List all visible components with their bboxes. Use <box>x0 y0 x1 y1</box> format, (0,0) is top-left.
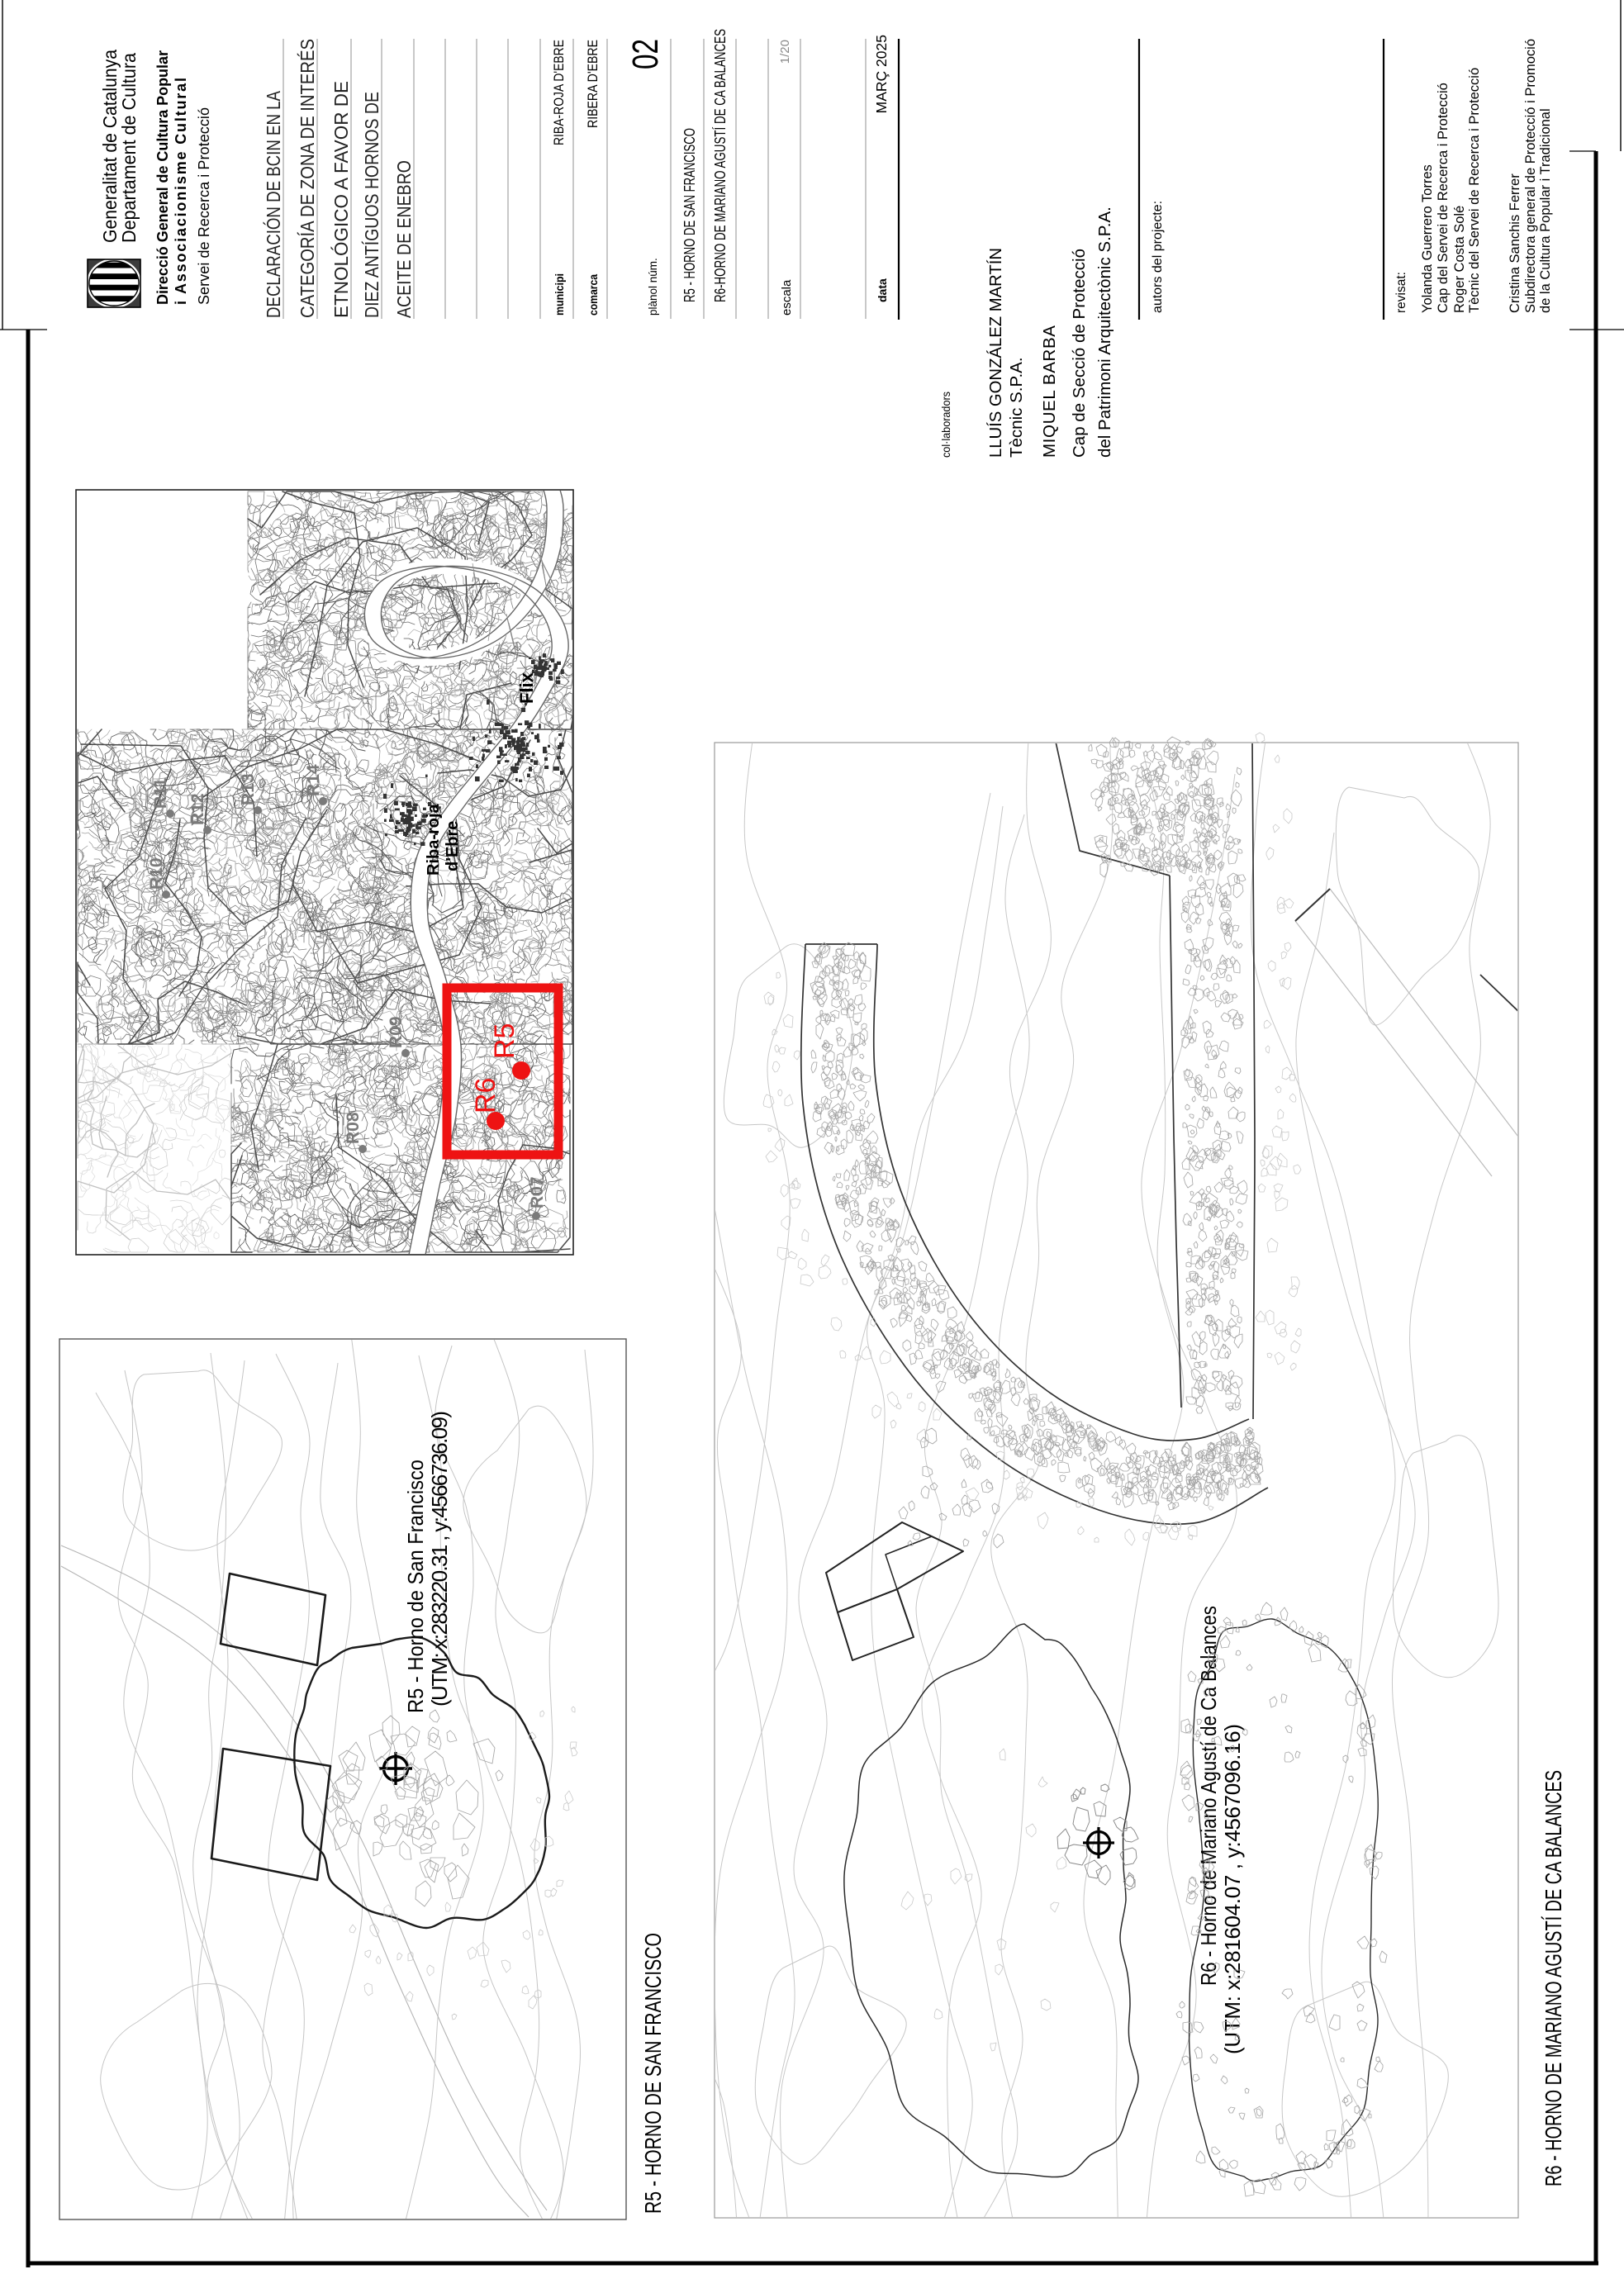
svg-text:data: data <box>876 278 889 302</box>
svg-text:Tècnic S.P.A.: Tècnic S.P.A. <box>1007 357 1026 458</box>
svg-text:R5 - Horno de San Francisco: R5 - Horno de San Francisco <box>403 1460 428 1713</box>
svg-text:CATEGORÍA DE ZONA DE INTERÉS: CATEGORÍA DE ZONA DE INTERÉS <box>297 39 318 318</box>
svg-text:ACEITE DE ENEBRO: ACEITE DE ENEBRO <box>393 160 415 318</box>
svg-text:d'Ebre: d'Ebre <box>444 821 462 871</box>
svg-text:ETNOLÓGICO A FAVOR DE: ETNOLÓGICO A FAVOR DE <box>330 81 352 318</box>
svg-text:R6-HORNO DE MARIANO AGUSTÍ DE: R6-HORNO DE MARIANO AGUSTÍ DE CA BALANCE… <box>712 29 729 302</box>
svg-text:(UTM: x:283220.31 , y:4566736.: (UTM: x:283220.31 , y:4566736.09) <box>427 1411 452 1707</box>
svg-text:Servei de Recerca i Protecció: Servei de Recerca i Protecció <box>196 107 212 305</box>
svg-text:Departament de Cultura: Departament de Cultura <box>118 53 140 243</box>
svg-text:R13: R13 <box>239 773 258 805</box>
svg-text:R5 - HORNO DE SAN FRANCISCO: R5 - HORNO DE SAN FRANCISCO <box>640 1933 666 2214</box>
svg-text:Flix: Flix <box>516 672 537 704</box>
svg-text:LLUÍS GONZÁLEZ MARTÍN: LLUÍS GONZÁLEZ MARTÍN <box>986 248 1005 458</box>
svg-text:R08: R08 <box>344 1112 363 1144</box>
svg-text:escala: escala <box>780 279 794 316</box>
svg-text:revisat:: revisat: <box>1394 272 1408 313</box>
svg-text:Yolanda Guerrero Torres: Yolanda Guerrero Torres <box>1420 164 1435 313</box>
svg-text:Roger Costa Solé: Roger Costa Solé <box>1452 206 1467 313</box>
svg-text:R6 - Horno de Mariano Agustí d: R6 - Horno de Mariano Agustí de Ca Balan… <box>1196 1606 1221 1986</box>
svg-text:DECLARACIÓN DE BCIN EN LA: DECLARACIÓN DE BCIN EN LA <box>263 90 284 318</box>
svg-text:R09: R09 <box>387 1016 406 1048</box>
svg-text:Cap de Secció de Protecció: Cap de Secció de Protecció <box>1070 249 1089 458</box>
svg-text:(UTM: x:281604.07 , y:4567096.: (UTM: x:281604.07 , y:4567096.16) <box>1220 1724 1245 2054</box>
svg-text:Tècnic del Servei de Recerca i: Tècnic del Servei de Recerca i Protecció <box>1467 68 1482 313</box>
svg-text:R11: R11 <box>151 777 170 809</box>
svg-text:plànol núm.: plànol núm. <box>647 258 659 316</box>
svg-text:comarca: comarca <box>586 274 600 316</box>
svg-text:R10: R10 <box>147 857 166 890</box>
svg-text:1/20: 1/20 <box>778 40 792 64</box>
svg-text:municipi: municipi <box>553 273 566 316</box>
svg-text:MARÇ 2025: MARÇ 2025 <box>873 35 890 113</box>
svg-text:R12: R12 <box>188 793 207 825</box>
svg-text:R14: R14 <box>304 764 323 796</box>
svg-text:col·laboradors: col·laboradors <box>939 392 952 458</box>
svg-text:R5: R5 <box>489 1023 520 1059</box>
svg-text:R6: R6 <box>470 1078 501 1113</box>
svg-text:02: 02 <box>625 39 666 69</box>
svg-text:del Patrimoni Arquitectònic S.: del Patrimoni Arquitectònic S.P.A. <box>1095 207 1114 458</box>
svg-text:R07: R07 <box>528 1176 547 1208</box>
svg-text:RIBA-ROJA D'EBRE: RIBA-ROJA D'EBRE <box>551 40 567 145</box>
svg-text:RIBERA D'EBRE: RIBERA D'EBRE <box>585 40 601 128</box>
svg-text:Subdirectora general de Protec: Subdirectora general de Protecció i Prom… <box>1523 39 1538 313</box>
svg-text:R6 - HORNO DE MARIANO AGUSTÍ D: R6 - HORNO DE MARIANO AGUSTÍ DE CA BALAN… <box>1541 1770 1566 2186</box>
svg-text:Cap del Servei de Recerca i Pr: Cap del Servei de Recerca i Protecció <box>1436 83 1451 313</box>
svg-text:Riba-roja: Riba-roja <box>425 803 443 876</box>
svg-text:de la Cultura Popular i Tradi: de la Cultura Popular i Tradicional <box>1538 108 1553 313</box>
svg-text:autors del projecte:: autors del projecte: <box>1151 201 1165 313</box>
svg-text:Direcció General de Cultura Po: Direcció General de Cultura Popular <box>154 50 171 305</box>
svg-text:R5 - HORNO DE SAN FRANCISCO: R5 - HORNO DE SAN FRANCISCO <box>681 128 698 302</box>
svg-text:DIEZ ANTÍGUOS HORNOS DE: DIEZ ANTÍGUOS HORNOS DE <box>361 92 382 318</box>
svg-text:MIQUEL BARBA: MIQUEL BARBA <box>1040 325 1059 458</box>
svg-text:Cristina Sanchis Ferrer: Cristina Sanchis Ferrer <box>1508 173 1522 313</box>
svg-text:i Associacionisme Cultural: i Associacionisme Cultural <box>173 78 189 305</box>
